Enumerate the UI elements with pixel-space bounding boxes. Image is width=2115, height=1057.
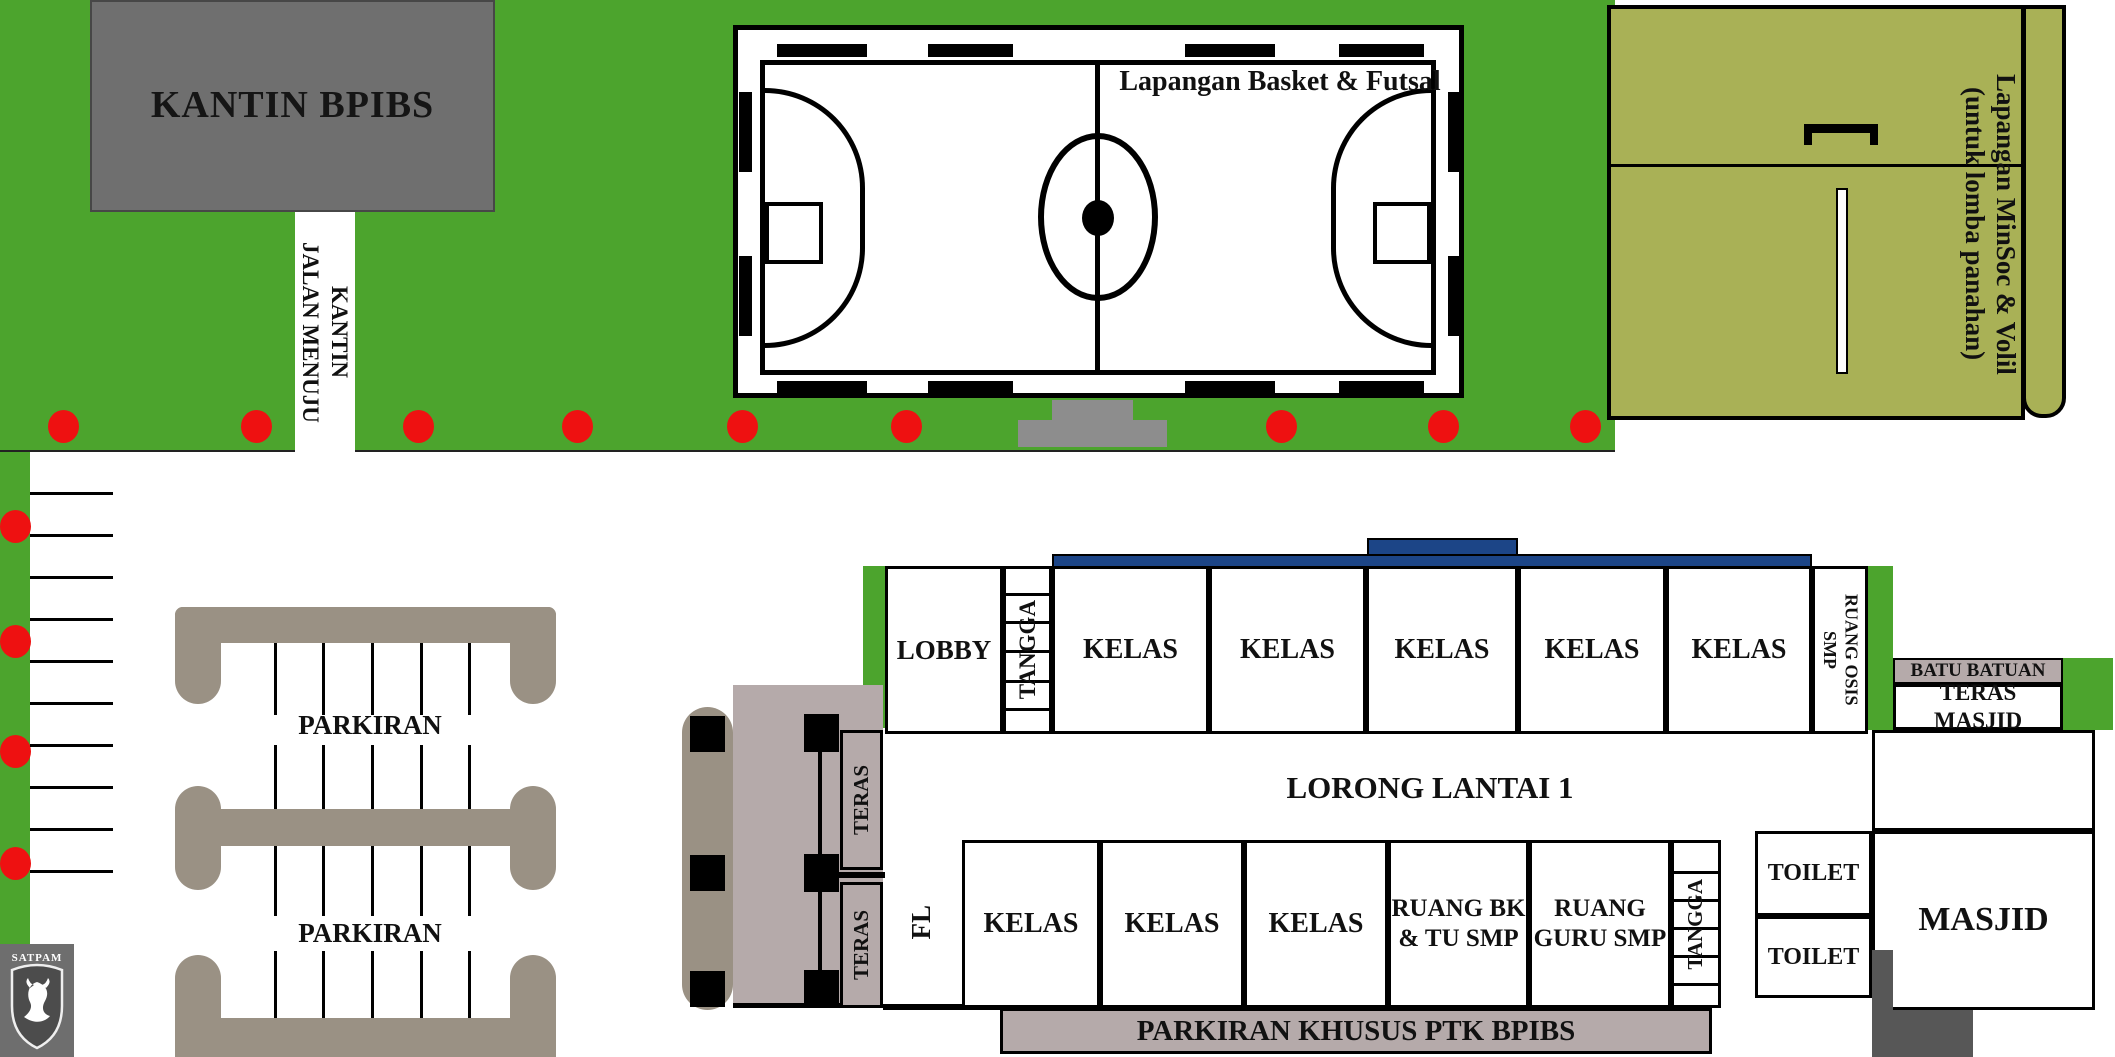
roof-bar [1052, 554, 1812, 568]
stairs-lower: TANGGA [1671, 840, 1721, 1008]
parking-slot-line [30, 870, 113, 873]
parking-slot-line [30, 744, 113, 747]
red-dot-marker [1266, 410, 1297, 443]
classroom-label: KELAS [984, 907, 1079, 941]
red-dot-marker [403, 410, 434, 443]
red-dot-marker [0, 847, 31, 880]
parking-structure-top-hook-left [175, 607, 221, 704]
kantin-building: KANTIN BPIBS [90, 0, 495, 212]
red-dot-marker [48, 410, 79, 443]
parking-divider-line [420, 643, 423, 715]
parking-slot-line [30, 534, 113, 537]
teras-label-1: TERAS [849, 765, 874, 835]
parking-divider-line [322, 951, 325, 1018]
parking-divider-line [371, 951, 374, 1018]
guru-room: RUANG GURU SMP [1529, 840, 1671, 1008]
satpam-label: SATPAM [0, 952, 74, 964]
court-dash [1185, 381, 1275, 394]
fl-label: FL [906, 905, 937, 940]
parking-slot-line [30, 828, 113, 831]
road-label-line2: KANTIN [326, 212, 354, 452]
classroom-label: KELAS [1545, 633, 1640, 667]
court-dash [739, 92, 752, 172]
parking-divider-line [420, 951, 423, 1018]
pillar-marker [804, 970, 839, 1008]
court-title: Lapangan Basket & Futsal [1100, 66, 1460, 98]
stair-tread-line [1006, 593, 1049, 596]
red-dot-marker [241, 410, 272, 443]
parking-divider-line [468, 951, 471, 1018]
toilet-label: TOILET [1768, 943, 1860, 972]
court-dash [777, 381, 867, 394]
archery-label: Lapangan MinSoc & Volil (untuk lomba pan… [1925, 15, 2021, 433]
parking-divider-line [420, 846, 423, 916]
lobby-label: LOBBY [897, 634, 992, 666]
bk-tu-room: RUANG BK & TU SMP [1388, 840, 1529, 1008]
teras-label-2: TERAS [849, 910, 874, 980]
parking-divider-line [420, 745, 423, 809]
pillar-marker [690, 971, 725, 1007]
teras-masjid: TERAS MASJID [1893, 684, 2063, 730]
court-key-right [1373, 202, 1431, 264]
pillar-marker [690, 716, 725, 752]
red-dot-marker [562, 410, 593, 443]
parking-divider-line [468, 745, 471, 809]
parking-divider-line [371, 846, 374, 916]
parkiran-khusus-bar: PARKIRAN KHUSUS PTK BPIBS [1000, 1008, 1712, 1054]
court-dash [1185, 44, 1275, 57]
grass-strip-osis [1868, 566, 1893, 730]
parking-divider-line [322, 846, 325, 916]
court-line-marker [1836, 188, 1848, 374]
stairs-lower-label: TANGGA [1683, 879, 1708, 970]
parking-label-2: PARKIRAN [220, 918, 520, 949]
court-dash [1448, 92, 1461, 172]
classroom-u5: KELAS [1666, 566, 1812, 734]
stair-tread-line [1674, 983, 1718, 986]
parking-divider-line [322, 745, 325, 809]
stair-tread-line [1674, 871, 1718, 874]
classroom-label: KELAS [1692, 633, 1787, 667]
archery-label-line2: (untuk lomba panahan) [1959, 15, 1990, 433]
osis-room: RUANG OSIS SMP [1812, 566, 1868, 734]
court-dash [777, 44, 867, 57]
classroom-label: KELAS [1269, 907, 1364, 941]
archery-field-side-capsule [2022, 5, 2066, 418]
court-dash [928, 44, 1013, 57]
mosque-entry-step-h [1893, 1010, 1973, 1057]
parking-slot-line [30, 576, 113, 579]
guru-label-line1: RUANG [1554, 894, 1646, 924]
roof-bar-top [1367, 538, 1518, 556]
parking-divider-line [371, 745, 374, 809]
classroom-label: KELAS [1125, 907, 1220, 941]
classroom-label: KELAS [1395, 633, 1490, 667]
parking-slot-line [30, 786, 113, 789]
parking-slot-line [30, 660, 113, 663]
red-dot-marker [0, 625, 31, 658]
parkiran-khusus-label: PARKIRAN KHUSUS PTK BPIBS [1137, 1014, 1576, 1049]
mosque-entry-step-v [1872, 950, 1893, 1057]
red-dot-marker [0, 510, 31, 543]
red-dot-marker [891, 410, 922, 443]
classroom-u1: KELAS [1052, 566, 1209, 734]
court-dash [1339, 44, 1424, 57]
red-dot-marker [1570, 410, 1601, 443]
road-label-line1: JALAN MENUJU [297, 212, 325, 452]
podium-step-top [1052, 400, 1133, 420]
pillar-marker [804, 714, 839, 752]
campus-map: KANTIN BPIBS JALAN MENUJU KANTIN Lapanga… [0, 0, 2115, 1057]
fl-area: FL [900, 880, 942, 964]
classroom-label: KELAS [1240, 633, 1335, 667]
pillar-marker [690, 855, 725, 891]
parking-structure-top-bar [175, 607, 556, 643]
classroom-l1: KELAS [962, 840, 1100, 1008]
parking-label-1: PARKIRAN [220, 710, 520, 741]
osis-label-line2: SMP [1818, 570, 1840, 730]
parking-divider-line [274, 951, 277, 1018]
corridor-label: LORONG LANTAI 1 [1205, 770, 1655, 806]
pillar-marker [804, 854, 839, 892]
classroom-u3: KELAS [1366, 566, 1518, 734]
court-center-dot [1082, 200, 1114, 236]
parking-structure-top-hook-right [510, 607, 556, 704]
court-dash [739, 256, 752, 336]
archery-label-line1: Lapangan MinSoc & Volil [1990, 15, 2021, 433]
classroom-u2: KELAS [1209, 566, 1366, 734]
teras-masjid-label: TERAS MASJID [1896, 679, 2060, 734]
parking-divider-line [274, 846, 277, 916]
classroom-label: KELAS [1083, 633, 1178, 667]
classroom-u4: KELAS [1518, 566, 1666, 734]
toilet-label: TOILET [1768, 859, 1860, 888]
parking-divider-line [274, 643, 277, 715]
red-dot-marker [1428, 410, 1459, 443]
stairs-upper-label: TANGGA [1014, 600, 1042, 699]
satpam-post: SATPAM [0, 944, 74, 1057]
guru-label-line2: GURU SMP [1534, 924, 1667, 954]
toilet-room-2: TOILET [1755, 916, 1872, 998]
court-dash [928, 381, 1013, 394]
parking-structure-mid-bar [175, 809, 556, 846]
parking-divider-line [274, 745, 277, 809]
court-dash [1448, 256, 1461, 336]
stairs-upper: TANGGA [1003, 566, 1052, 734]
road-to-kantin: JALAN MENUJU KANTIN [295, 212, 355, 452]
parking-slot-line [30, 618, 113, 621]
parking-divider-line [468, 846, 471, 916]
red-dot-marker [727, 410, 758, 443]
masjid-label: MASJID [1918, 900, 2048, 941]
stair-tread-line [1006, 708, 1049, 711]
teras-cell-1: TERAS [840, 730, 883, 870]
bk-label-line1: RUANG BK [1391, 894, 1525, 924]
parking-slot-line [30, 492, 113, 495]
parking-slot-line [30, 702, 113, 705]
kantin-label: KANTIN BPIBS [151, 83, 434, 129]
court-key-left [765, 202, 823, 264]
podium-step-bottom [1018, 420, 1167, 447]
parking-structure-bot-bar [175, 1018, 556, 1057]
red-dot-marker [0, 735, 31, 768]
grass-patch-mosque [2063, 658, 2113, 730]
net-symbol [1804, 124, 1878, 145]
parking-divider-line [322, 643, 325, 715]
court-dash [1339, 381, 1424, 394]
classroom-l3: KELAS [1244, 840, 1388, 1008]
teras-cell-2: TERAS [840, 882, 883, 1008]
toilet-room-1: TOILET [1755, 831, 1872, 916]
lobby-room: LOBBY [885, 566, 1003, 734]
parking-divider-line [371, 643, 374, 715]
teras-divider-line [838, 872, 885, 878]
mosque-courtyard [1872, 730, 2095, 831]
parking-divider-line [468, 643, 471, 715]
osis-label-line1: RUANG OSIS [1840, 570, 1862, 730]
classroom-l2: KELAS [1100, 840, 1244, 1008]
bk-label-line2: & TU SMP [1398, 924, 1518, 954]
masjid-building: MASJID [1872, 831, 2095, 1010]
